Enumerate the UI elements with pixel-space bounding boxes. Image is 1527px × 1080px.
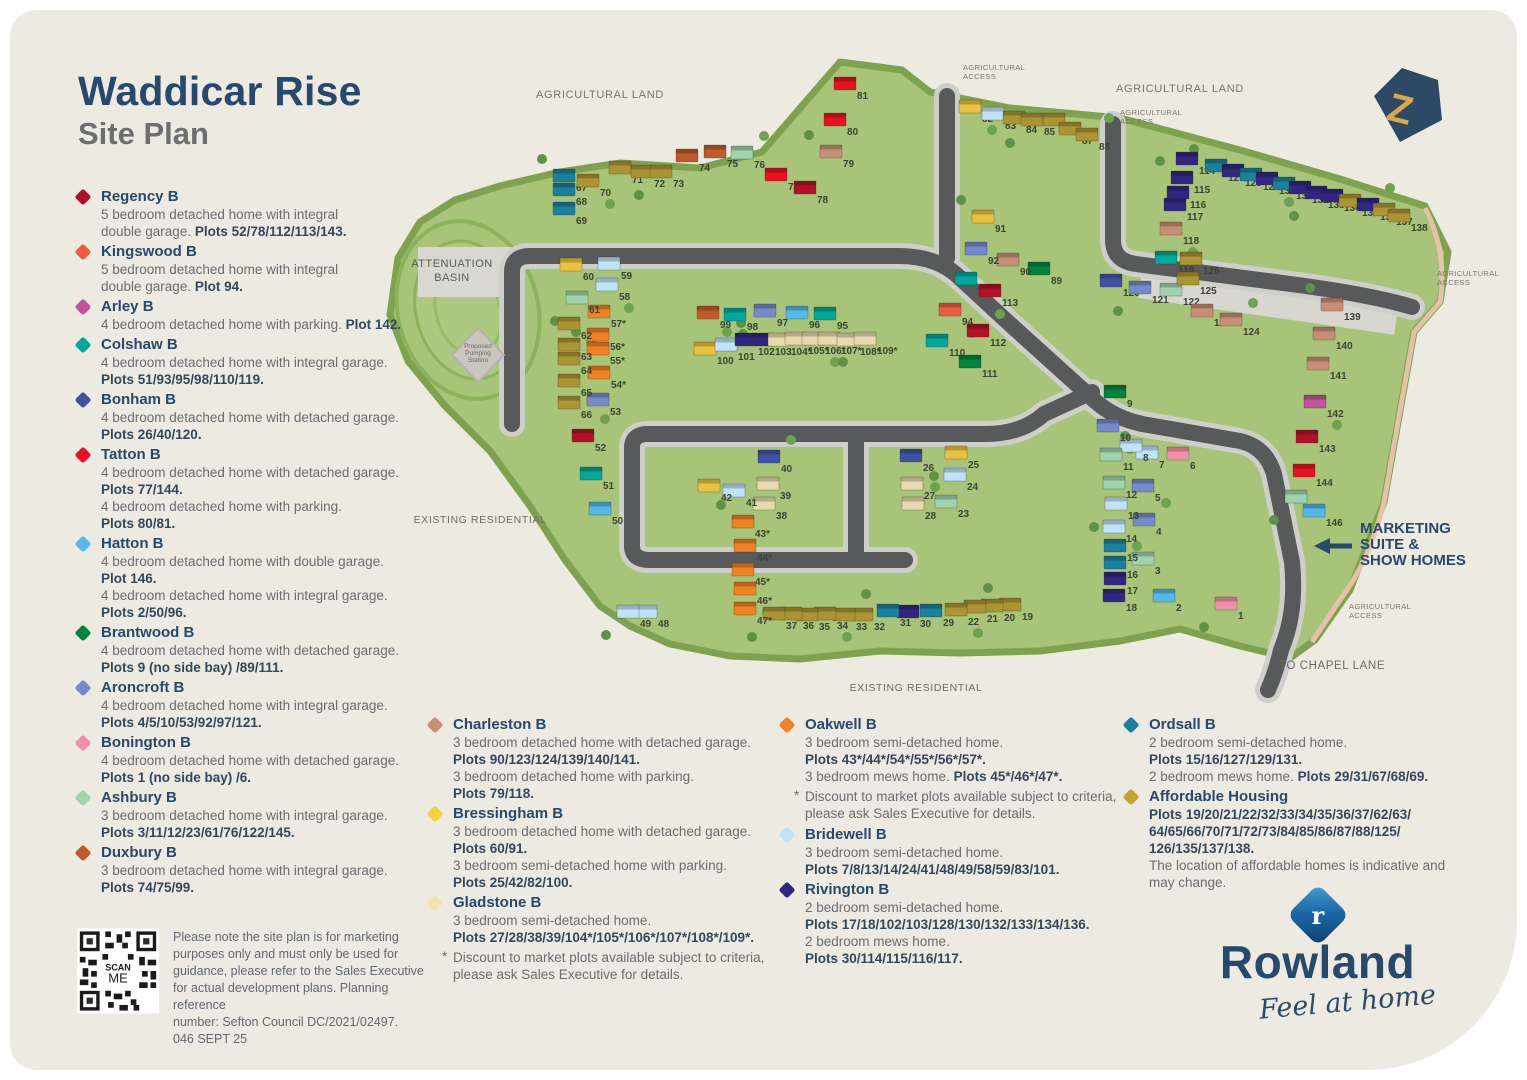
house-type-description: Plots 77/144. bbox=[101, 481, 421, 498]
house-type-diamond-icon bbox=[75, 735, 92, 752]
house-type-diamond-icon bbox=[75, 536, 92, 553]
house-type-description: 4 bedroom detached home with detached ga… bbox=[101, 752, 421, 769]
house-type-diamond-icon bbox=[1123, 789, 1140, 806]
house-type-description: Plots 30/114/115/116/117. bbox=[805, 950, 1120, 967]
legend-item-ordsall-b: Ordsall B2 bedroom semi-detached home.Pl… bbox=[1124, 716, 1474, 785]
legend-item-bonham-b: Bonham B4 bedroom detached home with det… bbox=[76, 391, 421, 443]
legend-item-affordable-housing: Affordable HousingPlots 19/20/21/22/32/3… bbox=[1124, 788, 1474, 891]
house-type-description: Plots 3/11/12/23/61/76/122/145. bbox=[101, 824, 421, 841]
house-type-name: Ashbury B bbox=[101, 789, 421, 807]
house-type-name: Aroncroft B bbox=[101, 679, 421, 697]
house-type-description: Plots 74/75/99. bbox=[101, 879, 421, 896]
house-type-description: Plots 17/18/102/103/128/130/132/133/134/… bbox=[805, 916, 1120, 933]
legend-item-rivington-b: Rivington B2 bedroom semi-detached home.… bbox=[780, 881, 1120, 967]
house-type-description: Plots 51/93/95/98/110/119. bbox=[101, 371, 421, 388]
house-type-description: 2 bedroom mews home. bbox=[805, 933, 1120, 950]
house-type-name: Colshaw B bbox=[101, 336, 421, 354]
house-type-description: Plots 1 (no side bay) /6. bbox=[101, 769, 421, 786]
house-type-diamond-icon bbox=[1123, 717, 1140, 734]
house-type-name: Ordsall B bbox=[1149, 716, 1474, 734]
legend-item-hatton-b: Hatton B4 bedroom detached home with dou… bbox=[76, 535, 421, 621]
legend-item-duxbury-b: Duxbury B3 bedroom detached home with in… bbox=[76, 844, 421, 896]
qr-me-label: ME bbox=[108, 970, 128, 985]
house-type-description: Plots 15/16/127/129/131. bbox=[1149, 751, 1474, 768]
house-type-name: Regency B bbox=[101, 188, 421, 206]
house-type-name: Tatton B bbox=[101, 446, 421, 464]
house-type-description: 3 bedroom detached home with integral ga… bbox=[101, 862, 421, 879]
house-type-description: 3 bedroom semi-detached home. bbox=[453, 912, 768, 929]
qr-code: SCAN ME bbox=[77, 928, 159, 1019]
site-plan-page: 1234567891011121314151617181920212223242… bbox=[0, 0, 1527, 1080]
legend-item-charleston-b: Charleston B3 bedroom detached home with… bbox=[428, 716, 768, 802]
house-type-description: 3 bedroom detached home with integral ga… bbox=[101, 807, 421, 824]
legend-item-arley-b: Arley B4 bedroom detached home with park… bbox=[76, 298, 421, 333]
house-type-description: 64/65/66/70/71/72/73/84/85/86/87/88/125/ bbox=[1149, 823, 1474, 840]
legend-house-types-col1: Charleston B3 bedroom detached home with… bbox=[428, 716, 768, 987]
house-type-diamond-icon bbox=[779, 827, 796, 844]
house-type-description: 126/135/137/138. bbox=[1149, 840, 1474, 857]
house-type-description: The location of affordable homes is indi… bbox=[1149, 857, 1474, 874]
legend-house-types-col2: Oakwell B3 bedroom semi-detached home.Pl… bbox=[780, 716, 1120, 970]
house-type-name: Bressingham B bbox=[453, 805, 768, 823]
house-type-description: Plots 9 (no side bay) /89/111. bbox=[101, 659, 421, 676]
house-type-description: Plots 27/28/38/39/104*/105*/106*/107*/10… bbox=[453, 929, 768, 946]
house-type-description: 3 bedroom mews home. Plots 45*/46*/47*. bbox=[805, 768, 1120, 785]
house-type-description: 2 bedroom mews home. Plots 29/31/67/68/6… bbox=[1149, 768, 1474, 785]
house-type-description: Plots 26/40/120. bbox=[101, 426, 421, 443]
house-type-description: 2 bedroom semi-detached home. bbox=[1149, 734, 1474, 751]
house-type-description: Plots 90/123/124/139/140/141. bbox=[453, 751, 768, 768]
legend-item-bridewell-b: Bridewell B3 bedroom semi-detached home.… bbox=[780, 826, 1120, 878]
discount-note: *Discount to market plots available subj… bbox=[780, 788, 1120, 822]
house-type-name: Rivington B bbox=[805, 881, 1120, 899]
house-type-description: 3 bedroom detached home with parking. bbox=[453, 768, 768, 785]
house-type-description: Plots 2/50/96. bbox=[101, 604, 421, 621]
legend-item-bressingham-b: Bressingham B3 bedroom detached home wit… bbox=[428, 805, 768, 891]
house-type-description: 3 bedroom detached home with detached ga… bbox=[453, 734, 768, 751]
house-type-diamond-icon bbox=[779, 882, 796, 899]
house-type-description: 4 bedroom detached home with detached ga… bbox=[101, 642, 421, 659]
house-type-description: 3 bedroom semi-detached home. bbox=[805, 734, 1120, 751]
house-type-description: Plots 4/5/10/53/92/97/121. bbox=[101, 714, 421, 731]
house-type-diamond-icon bbox=[75, 299, 92, 316]
brand-name: Rowland bbox=[1195, 939, 1440, 985]
house-type-diamond-icon bbox=[75, 337, 92, 354]
house-type-description: 3 bedroom detached home with detached ga… bbox=[453, 823, 768, 840]
house-type-description: 5 bedroom detached home with integral bbox=[101, 206, 421, 223]
house-type-description: 5 bedroom detached home with integral bbox=[101, 261, 421, 278]
house-type-description: Plots 19/20/21/22/32/33/34/35/36/37/62/6… bbox=[1149, 806, 1474, 823]
house-type-name: Bonham B bbox=[101, 391, 421, 409]
house-type-diamond-icon bbox=[427, 806, 444, 823]
house-type-description: 4 bedroom detached home with detached ga… bbox=[101, 464, 421, 481]
house-type-description: double garage. Plots 52/78/112/113/143. bbox=[101, 223, 421, 240]
legend-item-colshaw-b: Colshaw B4 bedroom detached home with in… bbox=[76, 336, 421, 388]
house-type-name: Bonington B bbox=[101, 734, 421, 752]
legend-house-types-left: Regency B5 bedroom detached home with in… bbox=[76, 188, 421, 899]
disclaimer-text: Please note the site plan is for marketi… bbox=[173, 929, 443, 1048]
house-type-name: Hatton B bbox=[101, 535, 421, 553]
legend-item-regency-b: Regency B5 bedroom detached home with in… bbox=[76, 188, 421, 240]
house-type-name: Kingswood B bbox=[101, 243, 421, 261]
legend-item-ashbury-b: Ashbury B3 bedroom detached home with in… bbox=[76, 789, 421, 841]
house-type-name: Brantwood B bbox=[101, 624, 421, 642]
house-type-description: 3 bedroom semi-detached home. bbox=[805, 844, 1120, 861]
legend-item-brantwood-b: Brantwood B4 bedroom detached home with … bbox=[76, 624, 421, 676]
house-type-description: Plots 7/8/13/14/24/41/48/49/58/59/83/101… bbox=[805, 861, 1120, 878]
house-type-diamond-icon bbox=[75, 189, 92, 206]
house-type-description: Plots 79/118. bbox=[453, 785, 768, 802]
house-type-diamond-icon bbox=[779, 717, 796, 734]
legend-item-tatton-b: Tatton B4 bedroom detached home with det… bbox=[76, 446, 421, 532]
house-type-diamond-icon bbox=[75, 244, 92, 261]
title-block: Waddicar Rise Site Plan bbox=[78, 68, 362, 154]
legend-house-types-col3: Ordsall B2 bedroom semi-detached home.Pl… bbox=[1124, 716, 1474, 894]
legend-item-bonington-b: Bonington B4 bedroom detached home with … bbox=[76, 734, 421, 786]
legend-item-gladstone-b: Gladstone B3 bedroom semi-detached home.… bbox=[428, 894, 768, 946]
legend-item-aroncroft-b: Aroncroft B4 bedroom detached home with … bbox=[76, 679, 421, 731]
house-type-description: 4 bedroom detached home with double gara… bbox=[101, 553, 421, 570]
house-type-diamond-icon bbox=[427, 895, 444, 912]
legend-item-kingswood-b: Kingswood B5 bedroom detached home with … bbox=[76, 243, 421, 295]
house-type-description: 3 bedroom semi-detached home with parkin… bbox=[453, 857, 768, 874]
house-type-diamond-icon bbox=[75, 392, 92, 409]
house-type-description: Plots 25/42/82/100. bbox=[453, 874, 768, 891]
brand-block: r Rowland Feel at home bbox=[1195, 893, 1440, 1018]
house-type-diamond-icon bbox=[75, 447, 92, 464]
house-type-description: 4 bedroom detached home with parking. bbox=[101, 498, 421, 515]
legend-item-oakwell-b: Oakwell B3 bedroom semi-detached home.Pl… bbox=[780, 716, 1120, 785]
house-type-description: Plots 43*/44*/54*/55*/56*/57*. bbox=[805, 751, 1120, 768]
house-type-diamond-icon bbox=[75, 680, 92, 697]
page-title: Waddicar Rise bbox=[78, 68, 362, 114]
house-type-description: double garage. Plot 94. bbox=[101, 278, 421, 295]
house-type-name: Bridewell B bbox=[805, 826, 1120, 844]
house-type-description: Plots 60/91. bbox=[453, 840, 768, 857]
house-type-description: 4 bedroom detached home with detached ga… bbox=[101, 409, 421, 426]
house-type-name: Arley B bbox=[101, 298, 421, 316]
house-type-description: 2 bedroom semi-detached home. bbox=[805, 899, 1120, 916]
house-type-name: Charleston B bbox=[453, 716, 768, 734]
house-type-name: Oakwell B bbox=[805, 716, 1120, 734]
house-type-description: 4 bedroom detached home with integral ga… bbox=[101, 354, 421, 371]
house-type-diamond-icon bbox=[75, 790, 92, 807]
house-type-name: Gladstone B bbox=[453, 894, 768, 912]
house-type-diamond-icon bbox=[427, 717, 444, 734]
page-subtitle: Site Plan bbox=[78, 114, 362, 154]
house-type-name: Affordable Housing bbox=[1149, 788, 1474, 806]
house-type-description: 4 bedroom detached home with parking. Pl… bbox=[101, 316, 421, 333]
house-type-description: 4 bedroom detached home with integral ga… bbox=[101, 587, 421, 604]
house-type-diamond-icon bbox=[75, 845, 92, 862]
house-type-description: Plot 146. bbox=[101, 570, 421, 587]
house-type-diamond-icon bbox=[75, 625, 92, 642]
house-type-description: 4 bedroom detached home with integral ga… bbox=[101, 697, 421, 714]
house-type-description: Plots 80/81. bbox=[101, 515, 421, 532]
discount-note: *Discount to market plots available subj… bbox=[428, 949, 768, 983]
house-type-name: Duxbury B bbox=[101, 844, 421, 862]
